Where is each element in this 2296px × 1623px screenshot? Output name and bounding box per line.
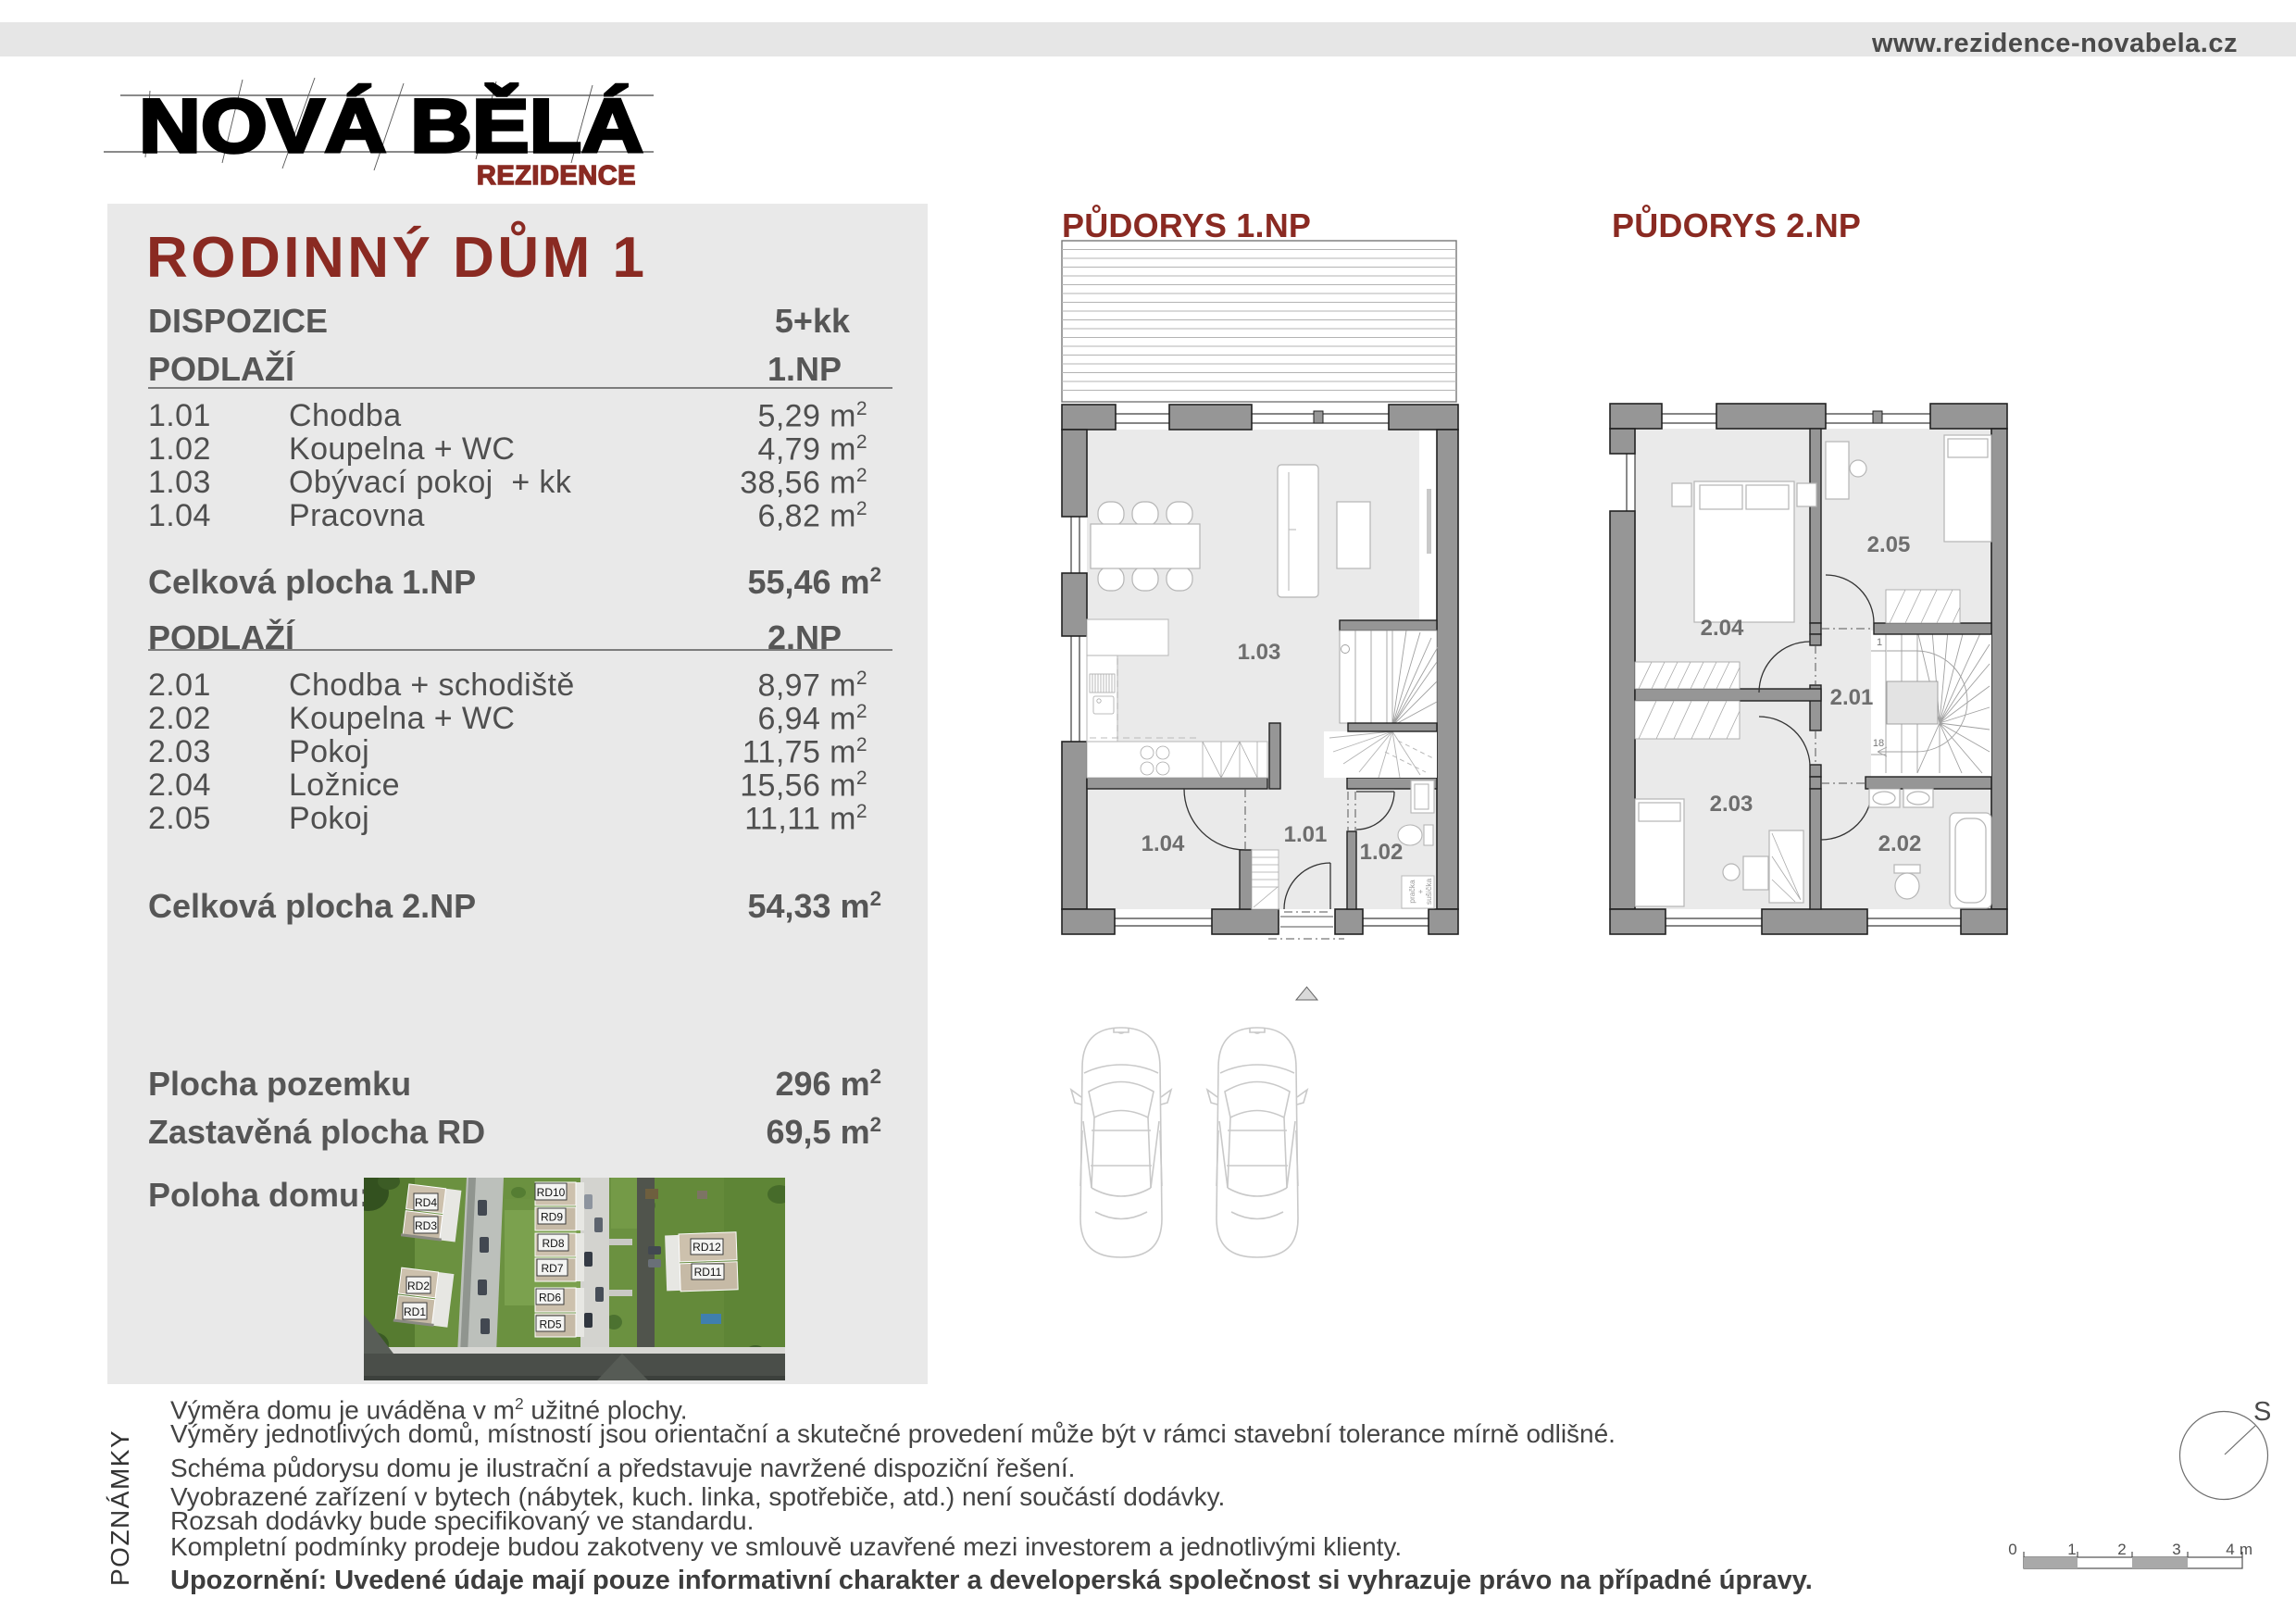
svg-text:RD2: RD2 — [407, 1280, 430, 1292]
svg-text:RD10: RD10 — [537, 1186, 566, 1199]
svg-text:NOVÁ BĚLÁ: NOVÁ BĚLÁ — [139, 83, 643, 169]
svg-text:2.04: 2.04 — [1701, 616, 1744, 641]
svg-text:1.03: 1.03 — [1238, 640, 1281, 665]
svg-text:sušička: sušička — [1424, 879, 1433, 905]
svg-text:RD5: RD5 — [539, 1318, 561, 1331]
svg-text:RD7: RD7 — [541, 1262, 563, 1275]
svg-text:m: m — [2240, 1541, 2252, 1558]
svg-text:4: 4 — [2226, 1541, 2234, 1558]
svg-text:S: S — [2253, 1397, 2271, 1427]
svg-text:RD12: RD12 — [693, 1241, 721, 1254]
svg-text:REZIDENCE: REZIDENCE — [477, 161, 636, 191]
svg-text:RD3: RD3 — [415, 1219, 437, 1232]
svg-text:2.03: 2.03 — [1710, 792, 1753, 817]
svg-text:3: 3 — [2172, 1541, 2180, 1558]
svg-text:1.04: 1.04 — [1142, 831, 1185, 856]
svg-text:RD4: RD4 — [415, 1196, 437, 1209]
svg-text:2.05: 2.05 — [1867, 532, 1911, 557]
svg-text:RD9: RD9 — [541, 1211, 563, 1224]
svg-text:2.02: 2.02 — [1878, 831, 1922, 856]
svg-text:2.01: 2.01 — [1830, 685, 1874, 710]
svg-text:RD6: RD6 — [539, 1292, 561, 1305]
svg-text:0: 0 — [2008, 1541, 2016, 1558]
svg-text:1: 1 — [1877, 637, 1882, 648]
svg-text:18: 18 — [1873, 738, 1884, 749]
svg-text:2: 2 — [2117, 1541, 2126, 1558]
svg-text:RD1: RD1 — [404, 1305, 426, 1318]
svg-text:1: 1 — [2067, 1541, 2076, 1558]
svg-text:RD11: RD11 — [694, 1266, 722, 1279]
svg-text:1.01: 1.01 — [1284, 822, 1328, 847]
svg-text:1.02: 1.02 — [1360, 840, 1404, 865]
svg-text:RD8: RD8 — [542, 1237, 564, 1250]
